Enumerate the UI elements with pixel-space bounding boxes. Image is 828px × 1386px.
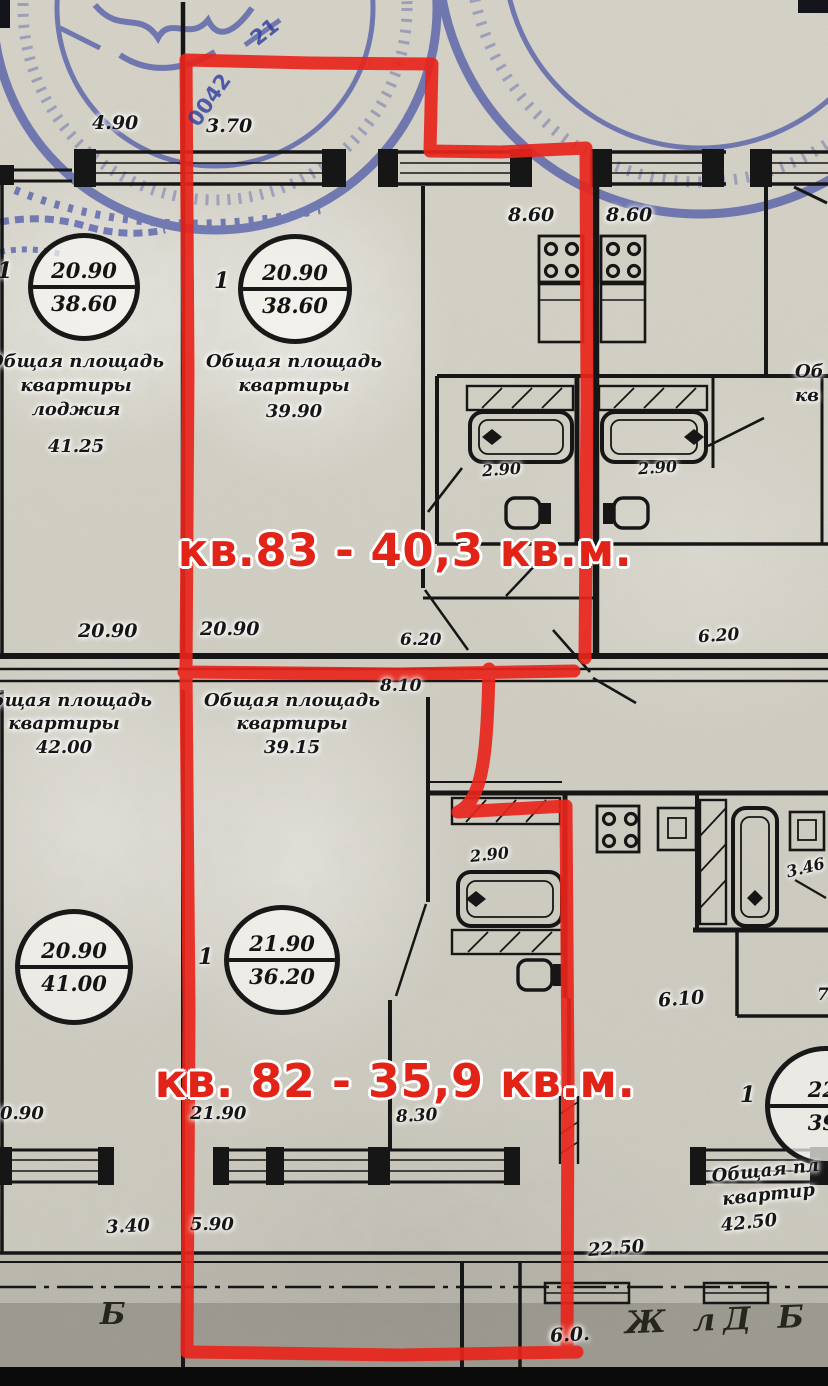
area-circle: 20.90 41.00 (15, 909, 133, 1025)
flat-number: 1 (0, 258, 12, 284)
dimension-label: 21.90 (190, 1103, 246, 1124)
total-area-value: 38.60 (33, 289, 135, 316)
area-text-line: Общая площадь (0, 690, 162, 713)
dimension-label: 8.60 (508, 204, 554, 226)
area-value: 39.90 (194, 400, 394, 424)
dimension-label: 5.90 (190, 1214, 234, 1235)
dimension-label: 3.46 (784, 854, 826, 882)
area-text-line: квартиры (0, 374, 176, 398)
handwritten-note: Ж лД Б (624, 1299, 812, 1342)
total-area-value: 38.60 (243, 291, 347, 318)
area-value: 42.00 (0, 737, 162, 760)
area-text-block: Общая площадь квартиры лоджия 41.25 (0, 350, 176, 459)
dimension-label: 6.20 (697, 625, 740, 648)
total-area-value: 36.20 (229, 962, 335, 989)
area-text-line: квартиры (194, 374, 394, 398)
room-area-value: 20.90 (33, 258, 135, 289)
total-area-value: 41.00 (20, 969, 128, 996)
total-area-value: 39. (770, 1108, 828, 1135)
area-text-block: Общая площадь квартиры 39.15 (192, 690, 392, 760)
flat-number: 1 (198, 944, 213, 970)
area-text-line: Об (795, 360, 828, 384)
labels-layer: 0042 21 4.90 3.70 8.60 8.60 1 20.90 38.6… (0, 0, 828, 1386)
dimension-label: 22.50 (587, 1236, 645, 1261)
dimension-label: 20.90 (78, 620, 138, 642)
room-area-value: 22. (770, 1077, 828, 1108)
area-text-block-clipped: Об кв (795, 360, 828, 408)
dimension-label: 6.20 (400, 630, 441, 650)
area-text-line: кв (795, 384, 828, 408)
area-value: 41.25 (0, 435, 176, 459)
area-circle: 22. 39. (765, 1046, 828, 1166)
dimension-label: 3.40 (105, 1215, 150, 1238)
area-value: 39.15 (192, 737, 392, 760)
area-circle: 20.90 38.60 (238, 234, 352, 344)
dimension-label: 4.90 (92, 112, 138, 134)
dimension-label: 3.70 (206, 115, 252, 137)
dimension-label: 6.0. (549, 1323, 590, 1347)
room-area-value: 20.90 (20, 938, 128, 969)
area-circle: 21.90 36.20 (224, 905, 340, 1015)
area-circle: 20.90 38.60 (28, 233, 140, 341)
axis-marker-b: Б (100, 1297, 126, 1332)
dimension-label: 2.90 (469, 843, 510, 866)
area-text-line: Общая площадь (192, 690, 392, 713)
area-text-block: Общая площадь квартиры 42.00 (0, 690, 162, 760)
area-text-line: Общая площадь (0, 350, 176, 374)
area-text-line: лоджия (0, 398, 176, 422)
floorplan-photo: 0042 21 4.90 3.70 8.60 8.60 1 20.90 38.6… (0, 0, 828, 1386)
apartment-82-annotation: кв. 82 - 35,9 кв.м. (130, 1054, 660, 1108)
dimension-label: 8.30 (396, 1105, 438, 1127)
room-area-value: 21.90 (229, 931, 335, 962)
dimension-label: 20.90 (200, 618, 260, 640)
dimension-label: 2.90 (481, 459, 521, 481)
flat-number: 1 (214, 268, 229, 294)
dimension-label: 2.90 (637, 457, 677, 479)
area-text-line: квартиры (0, 713, 162, 736)
area-text-block: Общая площадь квартиры 39.90 (194, 350, 394, 423)
area-text-block-clipped: Общая пл квартир 42.50 (711, 1147, 828, 1238)
dimension-label: 8.60 (606, 204, 652, 226)
flat-number: 1 (740, 1082, 755, 1108)
area-text-line: квартиры (192, 713, 392, 736)
dimension-label: 6.10 (657, 986, 705, 1011)
room-area-value: 20.90 (243, 260, 347, 291)
stamp-number-fragment: 21 (246, 14, 284, 51)
area-text-line: Общая площадь (194, 350, 394, 374)
dimension-label: 0.90 (0, 1103, 44, 1124)
dimension-label: 7 (817, 985, 828, 1005)
apartment-83-annotation: кв.83 - 40,3 кв.м. (150, 524, 660, 577)
